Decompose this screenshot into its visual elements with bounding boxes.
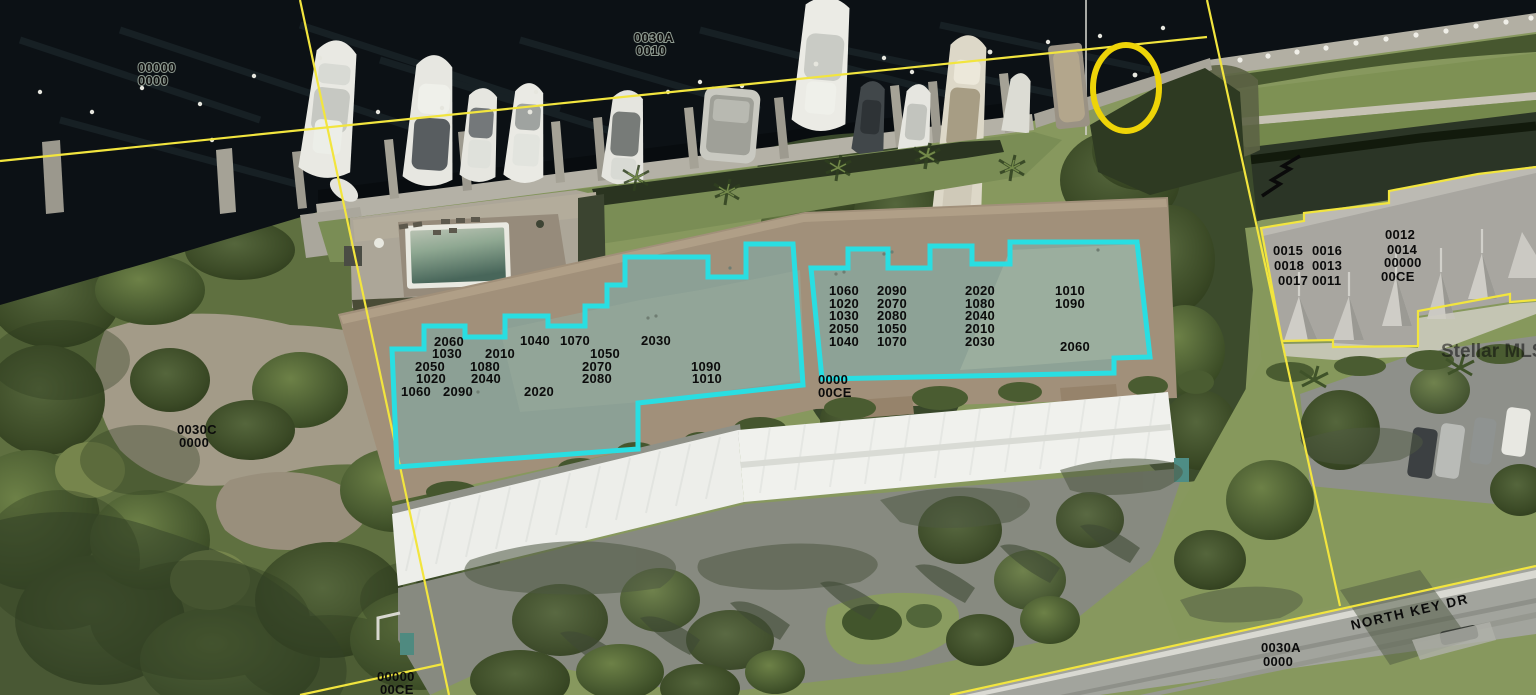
svg-text:0000: 0000 bbox=[1263, 654, 1293, 669]
svg-text:2060: 2060 bbox=[1060, 339, 1090, 354]
svg-text:1040: 1040 bbox=[829, 334, 859, 349]
svg-text:Stellar MLS: Stellar MLS bbox=[1441, 341, 1536, 362]
svg-text:2020: 2020 bbox=[524, 384, 554, 399]
svg-text:00CE: 00CE bbox=[380, 682, 414, 695]
svg-text:0000: 0000 bbox=[138, 73, 168, 88]
svg-text:0030A: 0030A bbox=[1261, 640, 1301, 655]
svg-text:0011: 0011 bbox=[1312, 273, 1341, 288]
svg-text:0016: 0016 bbox=[1312, 243, 1342, 258]
svg-text:2040: 2040 bbox=[471, 371, 501, 386]
svg-text:2080: 2080 bbox=[582, 371, 612, 386]
svg-text:0012: 0012 bbox=[1385, 227, 1415, 242]
svg-text:2090: 2090 bbox=[443, 384, 473, 399]
svg-text:0015: 0015 bbox=[1273, 243, 1303, 258]
svg-text:1040: 1040 bbox=[520, 333, 550, 348]
svg-text:1090: 1090 bbox=[1055, 296, 1085, 311]
svg-text:1060: 1060 bbox=[401, 384, 431, 399]
svg-text:0013: 0013 bbox=[1312, 258, 1342, 273]
svg-text:0000: 0000 bbox=[179, 435, 209, 450]
svg-text:1070: 1070 bbox=[560, 333, 590, 348]
svg-text:0010: 0010 bbox=[636, 43, 666, 58]
svg-text:0018: 0018 bbox=[1274, 258, 1304, 273]
svg-text:0017: 0017 bbox=[1278, 273, 1308, 288]
svg-text:1070: 1070 bbox=[877, 334, 907, 349]
svg-text:1010: 1010 bbox=[692, 371, 722, 386]
svg-text:00000: 00000 bbox=[1384, 255, 1422, 270]
svg-text:00CE: 00CE bbox=[1381, 269, 1415, 284]
svg-text:2030: 2030 bbox=[641, 333, 671, 348]
svg-text:00CE: 00CE bbox=[818, 385, 852, 400]
svg-text:2030: 2030 bbox=[965, 334, 995, 349]
